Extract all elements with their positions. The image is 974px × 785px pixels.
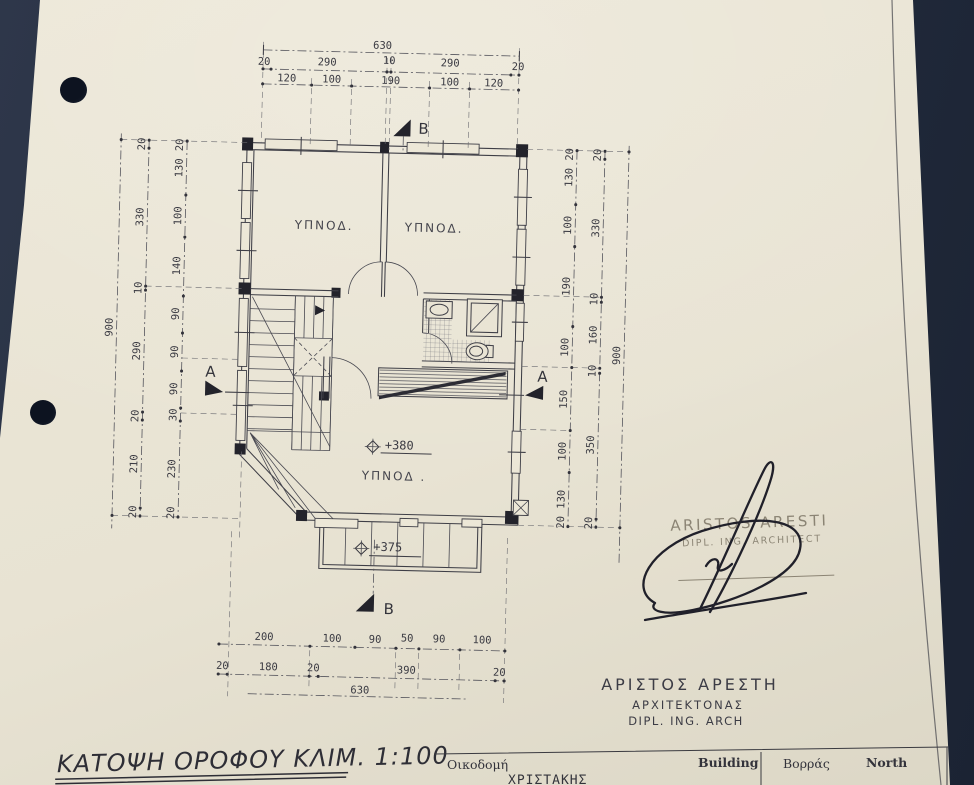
dim-label: 10 (132, 281, 144, 294)
room-label-bedroom2: ΥΠΝΟΔ. (404, 220, 464, 235)
dim-label: 330 (134, 207, 146, 226)
dim-label: 90 (168, 382, 180, 395)
titleblock-north-gr: Βορράς (783, 756, 830, 771)
dim-label: 130 (173, 158, 185, 177)
sheet-frame-line (892, 0, 941, 785)
dim-label: 100 (440, 76, 459, 88)
dim-label: 210 (128, 454, 140, 473)
dimensions-top: 630 20 290 10 290 20 120 100 190 100 120 (256, 37, 525, 153)
sink (426, 301, 452, 319)
dim-label: 330 (590, 218, 602, 237)
dim-label: 150 (558, 390, 570, 409)
dim-label: 90 (170, 307, 182, 320)
dim-label: 10 (587, 365, 599, 378)
dim-label: 90 (433, 633, 446, 645)
dim-label: 20 (583, 517, 595, 530)
stamp-name: ARISTOS ARESTI (670, 511, 829, 535)
dim-label: 350 (585, 435, 597, 454)
dim-label: 100 (322, 633, 341, 645)
dim-label: 390 (397, 664, 416, 676)
dim-label: 100 (556, 442, 568, 461)
punch-hole-top (60, 77, 87, 103)
dim-label: 20 (555, 516, 567, 529)
dim-left-total: 900 (103, 318, 115, 337)
titleblock-north-en: North (866, 755, 907, 770)
section-b-top-label: B (418, 120, 429, 138)
dim-label: 20 (174, 138, 186, 151)
dim-label: 130 (555, 490, 567, 509)
bathroom (423, 298, 503, 363)
dim-label: 130 (563, 168, 575, 187)
dim-label: 20 (136, 137, 148, 150)
interior-walls (248, 150, 520, 403)
shower (467, 299, 503, 337)
titleblock-building-gr: Οικοδομή (447, 757, 508, 772)
dim-bottom-total: 630 (350, 684, 369, 696)
dim-label: 20 (127, 505, 139, 518)
dim-label: 100 (322, 73, 341, 85)
level-balcony-value: +375 (373, 540, 402, 555)
drawing-sheet: A A B B ΥΠΝΟΔ. ΥΠΝΟΔ. ΥΠΝΟΔ . +380 (0, 0, 974, 785)
floor-plan-drawing: A A B B ΥΠΝΟΔ. ΥΠΝΟΔ. ΥΠΝΟΔ . +380 (0, 0, 974, 785)
dimensions-left: 20 130 100 140 90 90 90 30 230 20 20 330… (98, 133, 249, 541)
toilet (466, 342, 493, 360)
scanned-blueprint-photo: A A B B ΥΠΝΟΔ. ΥΠΝΟΔ. ΥΠΝΟΔ . +380 (0, 0, 974, 785)
dim-label: 100 (559, 338, 571, 357)
level-marker-floor: +380 (365, 437, 432, 456)
architect-role: ΑΡΧΙΤΕΚΤΟΝΑΣ (632, 698, 744, 712)
level-floor-value: +380 (385, 438, 414, 453)
dim-top-total: 630 (373, 40, 392, 52)
dim-label: 50 (401, 632, 414, 644)
dim-label: 290 (131, 341, 143, 360)
room-label-bedroom1: ΥΠΝΟΔ. (294, 218, 354, 233)
architect-degree: DIPL. ING. ARCH (628, 714, 744, 728)
drawing-title: ΚΑΤΟΨΗ ΟΡΟΦΟΥ ΚΛΙΜ. 1:100 (55, 741, 450, 783)
dim-label: 30 (167, 408, 179, 421)
dim-right-total: 900 (611, 346, 623, 365)
dim-label: 120 (277, 72, 296, 84)
dimensions-right: 20 130 100 190 100 150 100 130 20 20 330… (517, 143, 629, 565)
dim-label: 20 (493, 667, 506, 679)
section-a-right-label: A (537, 368, 548, 386)
dim-label: 10 (588, 293, 600, 306)
section-a-left-label: A (205, 363, 216, 381)
dim-label: 230 (166, 459, 178, 478)
dim-label: 100 (562, 216, 574, 235)
dim-label: 20 (592, 149, 604, 162)
titleblock-building-en: Building (698, 755, 759, 770)
dim-label: 160 (587, 325, 599, 344)
dim-label: 90 (369, 634, 382, 646)
dim-label: 20 (258, 56, 271, 68)
dim-label: 290 (318, 56, 337, 68)
dim-label: 140 (171, 256, 183, 275)
dim-label: 20 (307, 662, 320, 674)
drawing-title-text: ΚΑΤΟΨΗ ΟΡΟΦΟΥ ΚΛΙΜ. 1:100 (57, 741, 450, 778)
section-b-bottom-label: B (383, 600, 394, 618)
dim-label: 10 (383, 55, 396, 67)
dim-label: 120 (484, 77, 503, 89)
architect-block: ΑΡΙΣΤΟΣ ΑΡΕΣΤΗ ΑΡΧΙΤΕΚΤΟΝΑΣ DIPL. ING. A… (601, 675, 779, 728)
dim-label: 20 (165, 506, 177, 519)
staircase (245, 295, 340, 521)
titleblock-owner: ΧΡΙΣΤΑΚΗΣ (508, 773, 587, 785)
dim-label: 290 (441, 57, 460, 69)
dim-label: 100 (472, 634, 491, 646)
dim-label: 20 (512, 61, 525, 73)
dim-label: 20 (129, 409, 141, 422)
dim-label: 190 (561, 277, 573, 296)
architect-name: ΑΡΙΣΤΟΣ ΑΡΕΣΤΗ (601, 675, 779, 694)
wardrobe (378, 368, 508, 403)
punch-hole-bottom (30, 400, 56, 425)
level-marker-balcony: +375 (353, 539, 421, 558)
dim-label: 190 (381, 75, 400, 87)
dim-label: 90 (169, 345, 181, 358)
dimensions-bottom: 200 100 90 50 90 100 20 180 20 390 20 63… (215, 531, 509, 703)
dim-label: 100 (172, 206, 184, 225)
room-label-bedroom3: ΥΠΝΟΔ . (361, 468, 427, 484)
dim-label: 180 (259, 661, 278, 673)
dim-label: 20 (564, 148, 576, 161)
title-block: Οικοδομή Building Βορράς North ΧΡΙΣΤΑΚΗΣ (434, 747, 948, 785)
dim-label: 200 (254, 631, 273, 643)
dim-label: 20 (216, 660, 229, 672)
